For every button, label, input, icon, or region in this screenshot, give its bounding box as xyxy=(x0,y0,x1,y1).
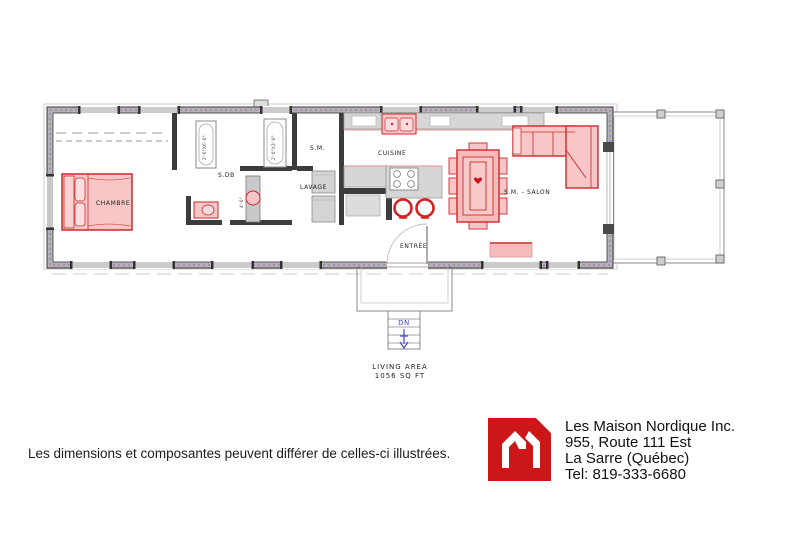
window-left xyxy=(46,174,54,230)
toilet xyxy=(194,202,218,218)
stairs: DN xyxy=(388,311,420,349)
shower-dim: 2'-6"X3'-0" xyxy=(271,135,276,160)
company-phone: Tel: 819-333-6680 xyxy=(565,467,735,483)
company-address-line2: La Sarre (Québec) xyxy=(565,451,735,467)
bathtub-dim: 2'-6"X6'-0" xyxy=(202,135,207,160)
company-name: Les Maison Nordique Inc. xyxy=(565,419,735,435)
living-area-note: LIVING AREA 1056 SQ FT xyxy=(372,363,428,380)
living-dining-label: S.M. - SALON xyxy=(504,189,550,196)
stairs-down-label: DN xyxy=(398,319,410,327)
company-logo xyxy=(488,418,551,481)
brand-block: Les Maison Nordique Inc. 955, Route 111 … xyxy=(488,418,735,483)
dining-table xyxy=(449,143,507,229)
living-area-line1: LIVING AREA xyxy=(372,363,428,371)
laundry-room: LAVAGE xyxy=(300,171,335,222)
front-porch: DN xyxy=(357,267,452,349)
laundry-label: LAVAGE xyxy=(300,184,327,191)
vanity: 4'-0" xyxy=(239,176,260,222)
living-dining: S.M. - SALON xyxy=(449,126,598,257)
mechanical-label: S.M. xyxy=(310,145,325,152)
entry-closet xyxy=(346,195,380,216)
entry-label: ENTRÉE xyxy=(400,242,427,250)
entry: ENTRÉE xyxy=(387,224,428,270)
tv-console xyxy=(490,243,532,257)
bathtub: 2'-6"X6'-0" xyxy=(196,121,216,168)
stove xyxy=(390,168,418,190)
patio-door xyxy=(603,142,614,234)
bedroom-label: CHAMBRE xyxy=(96,200,130,207)
living-area-line2: 1056 SQ FT xyxy=(375,372,425,380)
disclaimer-text: Les dimensions et composantes peuvent di… xyxy=(28,446,450,461)
deck xyxy=(610,110,724,265)
bar-stools xyxy=(395,200,434,219)
kitchen-label: CUISINE xyxy=(378,150,406,157)
vanity-dim: 4'-0" xyxy=(239,197,244,208)
company-address-line1: 955, Route 111 Est xyxy=(565,435,735,451)
sectional-sofa xyxy=(513,126,598,188)
logo-m-icon xyxy=(488,418,551,481)
kitchen-sink xyxy=(382,114,416,134)
page: CHAMBRE 2'-6"X6'-0" 2'-6"X3'-0" 4'-0" S.… xyxy=(0,0,791,535)
bedroom: CHAMBRE xyxy=(56,133,168,230)
company-info: Les Maison Nordique Inc. 955, Route 111 … xyxy=(565,419,735,483)
mechanical-room: S.M. xyxy=(310,145,325,152)
bathroom-label: S.DB xyxy=(218,172,235,179)
shower: 2'-6"X3'-0" xyxy=(264,119,286,167)
